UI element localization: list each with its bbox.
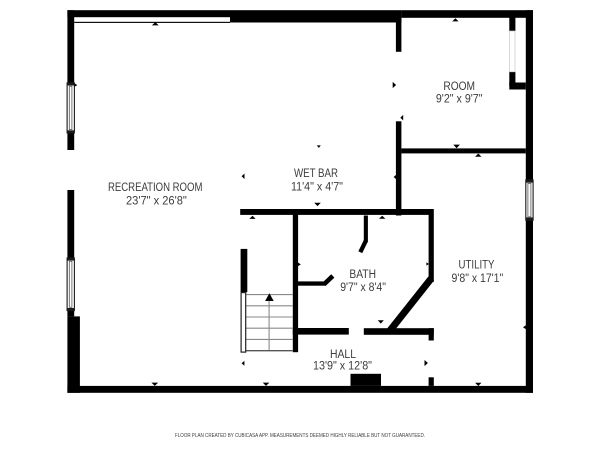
svg-text:9'2" x 9'7": 9'2" x 9'7" — [436, 92, 483, 106]
svg-text:RECREATION ROOM: RECREATION ROOM — [108, 180, 203, 194]
svg-text:11'4" x 4'7": 11'4" x 4'7" — [291, 179, 343, 193]
svg-text:13'9" x 12'8": 13'9" x 12'8" — [313, 358, 372, 372]
svg-text:WET BAR: WET BAR — [294, 166, 338, 180]
svg-text:UTILITY: UTILITY — [459, 258, 495, 272]
svg-text:9'8" x 17'1": 9'8" x 17'1" — [452, 271, 504, 285]
svg-text:FLOOR PLAN CREATED BY CUBICASA: FLOOR PLAN CREATED BY CUBICASA APP. MEAS… — [175, 433, 425, 439]
svg-text:23'7" x 26'8": 23'7" x 26'8" — [126, 193, 187, 207]
svg-text:9'7" x 8'4": 9'7" x 8'4" — [340, 280, 386, 294]
svg-text:BATH: BATH — [349, 267, 376, 281]
